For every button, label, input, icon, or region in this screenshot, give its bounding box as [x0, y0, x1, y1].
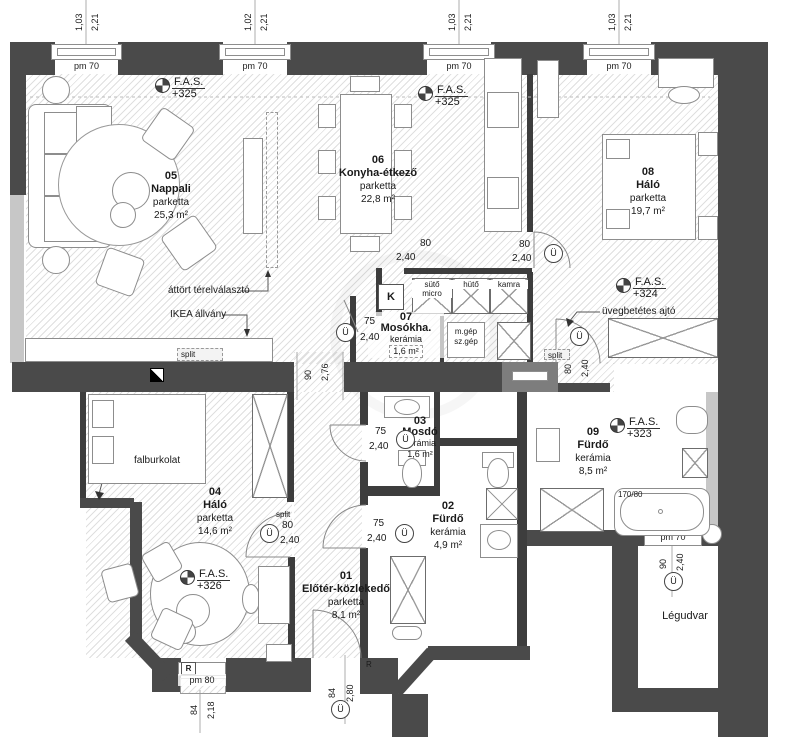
room-area: 8,5 m² — [548, 465, 638, 478]
door-type-marker: Ü — [395, 524, 414, 543]
level-icon — [155, 78, 170, 93]
fridge-label: hütő — [452, 280, 490, 289]
washbasin — [676, 406, 708, 434]
room-number: 01 — [290, 570, 402, 583]
window-label: pm 70 — [587, 62, 651, 71]
cabinet — [537, 60, 559, 118]
door-type-marker: Ü — [336, 323, 355, 342]
door-type-marker: Ü — [260, 524, 279, 543]
shower — [682, 448, 708, 478]
window-label: pm 70 — [223, 62, 287, 71]
level-icon — [616, 278, 631, 293]
toilet-bowl — [487, 458, 509, 488]
room-area: 14,6 m² — [170, 525, 260, 538]
door-dim: 80 — [562, 350, 574, 374]
door-dim: 2,40 — [280, 535, 299, 547]
door-dim: 75 — [364, 316, 375, 328]
room-name: Fürdő — [548, 439, 638, 452]
window-dim-h: 2,40 — [674, 541, 686, 571]
window-dim-h: 2,21 — [258, 5, 270, 31]
room-material: parketta — [333, 180, 423, 193]
window-dim-w: 1,03 — [606, 5, 618, 31]
window-dim-w: 84 — [188, 689, 200, 715]
room-number: 06 — [333, 154, 423, 167]
door-dim: 75 — [375, 426, 386, 438]
window-frame — [589, 48, 649, 56]
door-dim: 2,80 — [344, 670, 356, 702]
room-material: kerámia — [375, 438, 465, 449]
chair — [350, 236, 380, 252]
bench — [540, 488, 604, 532]
room-label-furdo02: 02 Fürdő kerámia 4,9 m² — [403, 500, 493, 552]
room-label-konyha: 06 Konyha-étkező parketta 22,8 m² — [333, 154, 423, 206]
desk-chair — [668, 86, 700, 104]
oven-label-1: sütő — [412, 280, 452, 289]
door-dim: 2,40 — [367, 533, 386, 545]
room-label-halo04: 04 Háló parketta 14,6 m² — [170, 486, 260, 538]
side-table — [42, 76, 70, 104]
room-material: parketta — [290, 596, 402, 609]
door-dim: 84 — [326, 674, 338, 698]
side-table — [42, 246, 70, 274]
door-dim: 80 — [519, 239, 530, 251]
chair — [394, 104, 412, 128]
door-dim: 2,40 — [369, 441, 388, 453]
room-area: 8,1 m² — [290, 609, 402, 622]
room-divider — [266, 112, 278, 268]
room-material: kerámia — [403, 526, 493, 539]
room-number: 04 — [170, 486, 260, 499]
washbasin-bowl — [394, 399, 420, 415]
door-dim: 2,40 — [396, 252, 415, 264]
room-area: 19,7 m² — [603, 205, 693, 218]
window-dim-w: 1,03 — [73, 5, 85, 31]
room-material: parketta — [603, 192, 693, 205]
window-frame — [225, 48, 285, 56]
room-area: 22,8 m² — [333, 193, 423, 206]
kitchen-appliance — [487, 177, 519, 209]
window-dim-h: 2,21 — [89, 5, 101, 31]
level-icon — [610, 418, 625, 433]
room-area: 25,3 m² — [126, 209, 216, 222]
room-label-nappali: 05 Nappali parketta 25,3 m² — [126, 170, 216, 222]
room-material: parketta — [126, 196, 216, 209]
split-unit-label: split — [276, 510, 290, 519]
k-marker: K — [378, 284, 404, 310]
window-dim-w: 1,02 — [242, 5, 254, 31]
annotation-wall-cover: falburkolat — [134, 455, 180, 467]
room-name: Háló — [170, 499, 260, 512]
nightstand — [698, 132, 718, 156]
kitchen-appliance — [487, 92, 519, 128]
room-name: Mosdó — [375, 427, 465, 438]
annotation-divider: áttört térelválasztó — [168, 285, 250, 297]
lightwell-label: Légudvar — [640, 610, 730, 622]
room-name: Fürdő — [403, 513, 493, 526]
bathtub-drain — [658, 509, 663, 514]
window-dim-w: 90 — [657, 543, 669, 569]
room-material: parketta — [170, 512, 260, 525]
window-label: pm 80 — [178, 674, 226, 686]
door-dim: 75 — [373, 518, 384, 530]
room-number: 05 — [126, 170, 216, 183]
window-label: pm 70 — [55, 62, 118, 71]
ikea-shelf — [243, 138, 263, 234]
window-dim-h: 2,21 — [622, 5, 634, 31]
room-label-furdo09: 09 Fürdő kerámia 8,5 m² — [548, 426, 638, 478]
room-name: Nappali — [126, 183, 216, 196]
commode — [258, 566, 290, 624]
level-value: +324 — [633, 288, 658, 300]
shoe-bench — [392, 626, 422, 640]
door-dim: 80 — [282, 520, 293, 532]
window-frame — [429, 48, 489, 56]
toilet-bowl — [402, 458, 422, 488]
level-value: +325 — [435, 96, 460, 108]
nightstand — [698, 216, 718, 240]
duct-shaft — [497, 322, 531, 360]
small-cabinet — [266, 644, 292, 662]
level-value: +325 — [172, 88, 197, 100]
opening-dim: 90 — [302, 356, 314, 380]
door-dim: 2,40 — [360, 332, 379, 344]
lowboard — [25, 338, 273, 362]
window-dim-h: 2,21 — [462, 5, 474, 31]
floor-plan: pm 70 1,03 2,21 pm 70 1,02 2,21 pm 70 1,… — [0, 0, 800, 737]
annotation-glass-door: üvegbetétes ajtó — [602, 306, 675, 318]
bathtub-size: 170/80 — [618, 490, 642, 499]
window-frame — [57, 48, 116, 56]
room-label-eloter: 01 Előtér-közlekedő parketta 8,1 m² — [290, 570, 402, 622]
pantry-label: kamra — [490, 280, 528, 289]
door-type-marker: Ü — [544, 244, 563, 263]
room-area: 4,9 m² — [403, 539, 493, 552]
room-area: 1,6 m² — [375, 449, 465, 460]
window-dim-w: 1,03 — [446, 5, 458, 31]
door-dim: 80 — [420, 238, 431, 250]
door-type-marker: Ü — [396, 430, 415, 449]
oven-label-2: micro — [412, 289, 452, 298]
room-number: 08 — [603, 166, 693, 179]
level-value: +323 — [627, 428, 652, 440]
washer-label-2: sz.gép — [447, 337, 485, 346]
pillow — [92, 400, 114, 428]
door-dim: 2,40 — [579, 347, 591, 377]
window-label: pm 70 — [427, 62, 491, 71]
split-unit-label: split — [177, 348, 223, 361]
door-dim: 2,40 — [512, 253, 531, 265]
washer-label-1: m.gép — [447, 327, 485, 336]
room-area: 1,6 m² — [389, 345, 423, 358]
wardrobe — [608, 318, 718, 358]
chair — [318, 104, 336, 128]
shutter-marker: R — [366, 660, 372, 669]
chair — [350, 76, 380, 92]
room-name: Háló — [603, 179, 693, 192]
level-icon — [180, 570, 195, 585]
room-material: kerámia — [548, 452, 638, 465]
door-type-marker: Ü — [331, 700, 350, 719]
opening-dim: 2,76 — [319, 351, 331, 381]
annotation-shelf: IKEA állvány — [170, 309, 226, 321]
level-value: +326 — [197, 580, 222, 592]
pillow — [606, 139, 630, 159]
window-type-marker: Ü — [664, 572, 683, 591]
room-name: Előtér-közlekedő — [290, 583, 402, 596]
room-label-halo08: 08 Háló parketta 19,7 m² — [603, 166, 693, 218]
door-type-marker: Ü — [570, 327, 589, 346]
desk — [658, 58, 714, 88]
wardrobe — [252, 394, 288, 498]
window-dim-h: 2,18 — [205, 689, 217, 719]
room-label-mosdo: 03 Mosdó kerámia 1,6 m² — [375, 416, 465, 460]
room-number: 02 — [403, 500, 493, 513]
level-icon — [418, 86, 433, 101]
pillow — [92, 436, 114, 464]
room-name: Konyha-étkező — [333, 167, 423, 180]
